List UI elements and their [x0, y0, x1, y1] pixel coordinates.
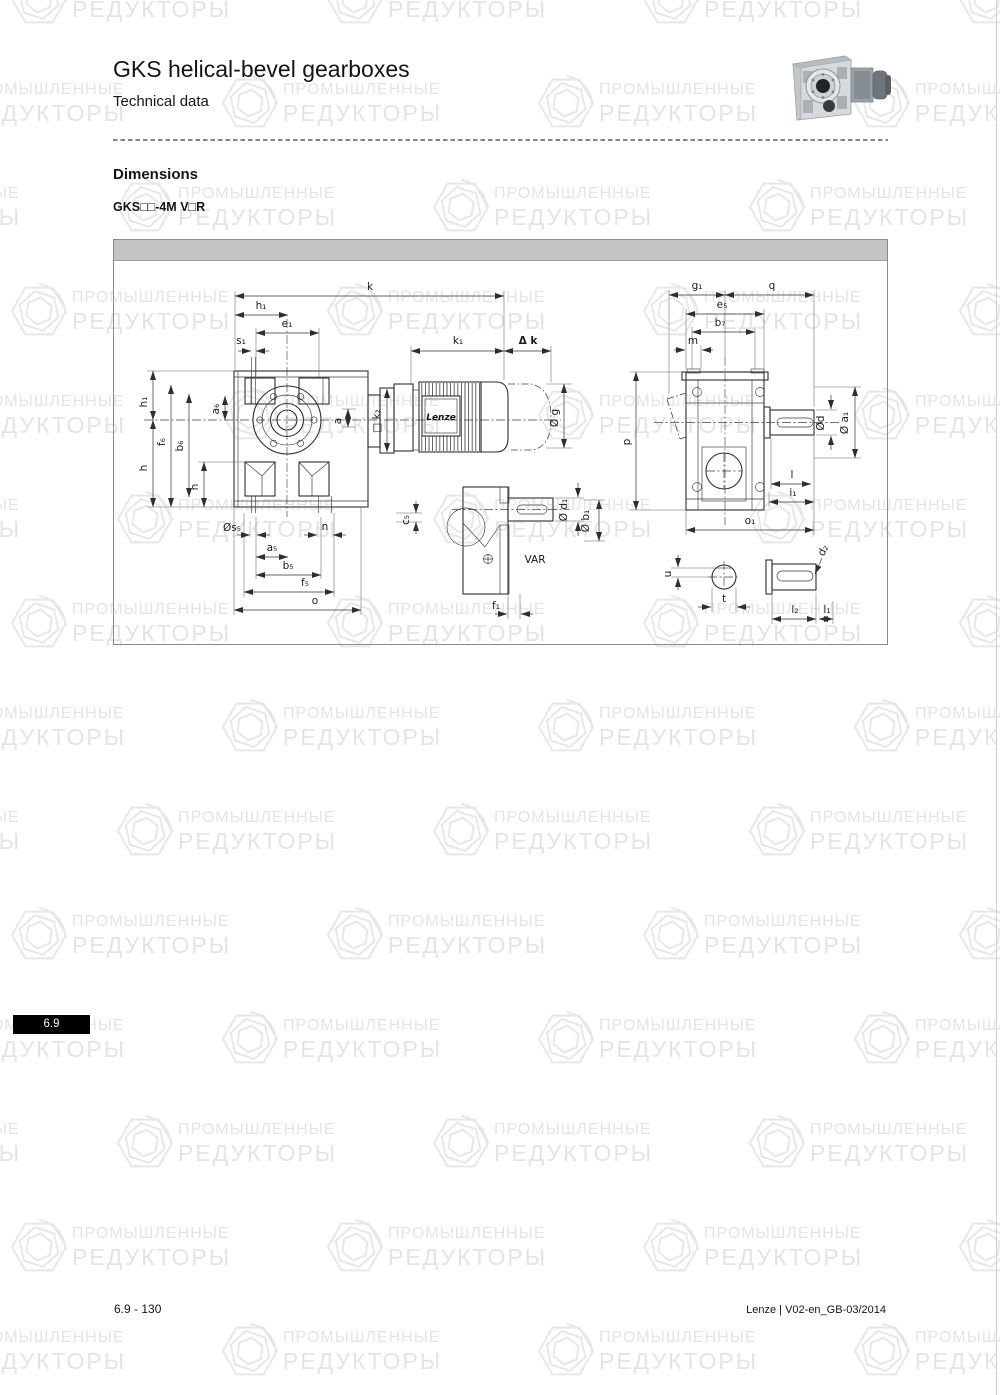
watermark-text-line1: ПРОМЫШЛЕННЫЕ — [599, 1328, 758, 1348]
svg-text:e₅: e₅ — [717, 299, 728, 311]
watermark-text-line2: РЕДУКТОРЫ — [0, 1036, 126, 1062]
watermark: ПРОМЫШЛЕННЫЕРЕДУКТОРЫ — [221, 1010, 442, 1068]
dimension-drawing-panel: Lenze k h₁ e₁ s₁ — [113, 239, 888, 645]
watermark: ПРОМЫШЛЕННЫЕРЕДУКТОРЫ — [537, 1322, 758, 1380]
watermark-text-line1: ПРОМЫШЛЕННЫЕ — [0, 1328, 126, 1348]
watermark-logo-icon — [221, 1010, 279, 1068]
watermark-text-line2: РЕДУКТОРЫ — [704, 932, 863, 958]
watermark: ПРОМЫШЛЕННЫЕРЕДУКТОРЫ — [853, 698, 1000, 756]
shaft-cross-section-detail: u t — [662, 555, 750, 612]
watermark-text-line2: РЕДУКТОРЫ — [0, 412, 126, 438]
watermark-logo-icon — [537, 1010, 595, 1068]
watermark-text-line2: РЕДУКТОРЫ — [494, 1140, 653, 1166]
svg-text:Ø b₁: Ø b₁ — [580, 510, 592, 532]
scan-edge-line — [996, 0, 997, 1395]
motor-brand-label: Lenze — [426, 413, 456, 423]
svg-text:g₁: g₁ — [692, 280, 703, 292]
svg-text:b₆: b₆ — [174, 441, 186, 452]
watermark-text-line2: РЕДУКТОРЫ — [388, 1244, 547, 1270]
watermark-text-line2: РЕДУКТОРЫ — [599, 1348, 758, 1374]
gearbox-product-image — [781, 44, 895, 124]
watermark-text-line1: ПРОМЫШЛЕННЫЕ — [283, 80, 442, 100]
watermark: ПРОМЫШЛЕННЫЕРЕДУКТОРЫ — [432, 1114, 653, 1172]
watermark-text-line2: РЕДУКТОРЫ — [72, 1244, 231, 1270]
watermark-text-line2: РЕДУКТОРЫ — [810, 204, 969, 230]
watermark-text-line2: РЕДУКТОРЫ — [72, 0, 231, 22]
svg-text:n: n — [322, 521, 329, 533]
watermark-logo-icon — [958, 282, 1000, 340]
watermark-text-line2: РЕДУКТОРЫ — [283, 1036, 442, 1062]
watermark: ПРОМЫШЛЕННЫЕРЕДУКТОРЫ — [748, 178, 969, 236]
watermark-text-line2: РЕДУКТОРЫ — [178, 828, 337, 854]
page-subtitle: Technical data — [113, 93, 209, 110]
drawing-header-bar — [114, 240, 887, 261]
svg-text:Ød: Ød — [815, 416, 827, 431]
svg-text:Δ k: Δ k — [519, 335, 539, 347]
watermark-text-line1: ПРОМЫШЛЕННЫЕ — [72, 912, 231, 932]
watermark-text-line1: ПРОМЫШЛЕННЫЕ — [178, 808, 337, 828]
watermark-logo-icon — [642, 906, 700, 964]
watermark-text-line1: ПРОМЫШЛЕННЫЕ — [704, 1224, 863, 1244]
watermark: ПРОМЫШЛЕННЫЕРЕДУКТОРЫ — [642, 1218, 863, 1276]
watermark: ПРОМЫШЛЕННЫЕРЕДУКТОРЫ — [958, 594, 1000, 652]
watermark: ПРОМЫШЛЕННЫЕРЕДУКТОРЫ — [642, 0, 863, 28]
watermark: ПРОМЫШЛЕННЫЕРЕДУКТОРЫ — [10, 0, 231, 28]
watermark: ПРОМЫШЛЕННЫЕРЕДУКТОРЫ — [0, 698, 126, 756]
svg-text:Ø a₁: Ø a₁ — [839, 412, 851, 434]
watermark-text-line1: ПРОМЫШЛЕННЫЕ — [0, 1120, 21, 1140]
section-heading: Dimensions — [113, 166, 198, 183]
watermark-text-line2: РЕДУКТОРЫ — [283, 724, 442, 750]
svg-text:t: t — [722, 593, 726, 605]
watermark: ПРОМЫШЛЕННЫЕРЕДУКТОРЫ — [432, 178, 653, 236]
watermark-text-line1: ПРОМЫШЛЕННЫЕ — [0, 392, 126, 412]
watermark: ПРОМЫШЛЕННЫЕРЕДУКТОРЫ — [0, 1322, 126, 1380]
watermark-text-line1: ПРОМЫШЛЕННЫЕ — [915, 704, 1000, 724]
watermark-text-line2: РЕДУКТОРЫ — [0, 724, 126, 750]
watermark-text-line2: РЕДУКТОРЫ — [915, 100, 1000, 126]
svg-text:Ø g: Ø g — [549, 409, 561, 427]
svg-text:b₇: b₇ — [715, 317, 726, 329]
watermark: ПРОМЫШЛЕННЫЕРЕДУКТОРЫ — [10, 906, 231, 964]
side-view: g₁ q e₅ b₇ m p — [621, 280, 861, 535]
var-shaft-section: Ø d₁ Ø b₁ f₁ VAR — [447, 483, 605, 619]
watermark-text-line1: ПРОМЫШЛЕННЫЕ — [0, 808, 21, 828]
watermark-text-line2: РЕДУКТОРЫ — [72, 932, 231, 958]
front-view-dimensions: k h₁ e₁ s₁ k₁ Δ k h₁ h f₆ — [138, 281, 572, 615]
watermark-text-line1: ПРОМЫШЛЕННЫЕ — [810, 1120, 969, 1140]
watermark-logo-icon — [116, 1114, 174, 1172]
watermark: ПРОМЫШЛЕННЫЕРЕДУКТОРЫ — [958, 906, 1000, 964]
watermark-text-line2: РЕДУКТОРЫ — [599, 724, 758, 750]
watermark-text-line2: РЕДУКТОРЫ — [704, 1244, 863, 1270]
watermark-logo-icon — [537, 74, 595, 132]
svg-text:l: l — [791, 469, 794, 481]
watermark-text-line2: РЕДУКТОРЫ — [283, 100, 442, 126]
watermark-logo-icon — [221, 698, 279, 756]
watermark-text-line1: ПРОМЫШЛЕННЫЕ — [599, 1016, 758, 1036]
watermark: ПРОМЫШЛЕННЫЕРЕДУКТОРЫ — [958, 282, 1000, 340]
watermark-text-line1: ПРОМЫШЛЕННЫЕ — [494, 808, 653, 828]
watermark-text-line1: ПРОМЫШЛЕННЫЕ — [0, 184, 21, 204]
watermark-logo-icon — [748, 178, 806, 236]
watermark: ПРОМЫШЛЕННЫЕРЕДУКТОРЫ — [642, 906, 863, 964]
watermark: ПРОМЫШЛЕННЫЕРЕДУКТОРЫ — [537, 74, 758, 132]
watermark-text-line2: РЕДУКТОРЫ — [704, 0, 863, 22]
watermark-text-line2: РЕДУКТОРЫ — [388, 0, 547, 22]
watermark: ПРОМЫШЛЕННЫЕРЕДУКТОРЫ — [0, 802, 21, 860]
watermark-text-line2: РЕДУКТОРЫ — [283, 1348, 442, 1374]
footer-document-id: Lenze | V02-en_GB-03/2014 — [746, 1304, 886, 1316]
watermark-logo-icon — [10, 1218, 68, 1276]
watermark: ПРОМЫШЛЕННЫЕРЕДУКТОРЫ — [0, 1114, 21, 1172]
watermark: ПРОМЫШЛЕННЫЕРЕДУКТОРЫ — [0, 74, 126, 132]
watermark: ПРОМЫШЛЕННЫЕРЕДУКТОРЫ — [326, 1218, 547, 1276]
watermark: ПРОМЫШЛЕННЫЕРЕДУКТОРЫ — [116, 802, 337, 860]
watermark-logo-icon — [221, 1322, 279, 1380]
svg-text:□ k₂: □ k₂ — [371, 409, 383, 433]
svg-text:o₁: o₁ — [745, 515, 756, 527]
watermark-text-line2: РЕДУКТОРЫ — [915, 412, 1000, 438]
svg-text:k: k — [367, 281, 374, 293]
svg-text:Øs₅: Øs₅ — [223, 522, 241, 534]
variant-label: VAR — [525, 554, 546, 566]
svg-text:d₂: d₂ — [816, 543, 832, 558]
watermark-logo-icon — [853, 698, 911, 756]
watermark-text-line1: ПРОМЫШЛЕННЫЕ — [283, 1328, 442, 1348]
watermark-text-line2: РЕДУКТОРЫ — [810, 1140, 969, 1166]
dashed-divider — [113, 138, 888, 142]
watermark-text-line2: РЕДУКТОРЫ — [915, 1348, 1000, 1374]
watermark: ПРОМЫШЛЕННЫЕРЕДУКТОРЫ — [326, 0, 547, 28]
watermark-logo-icon — [537, 1322, 595, 1380]
footer-page-number: 6.9 - 130 — [114, 1302, 161, 1316]
watermark-text-line1: ПРОМЫШЛЕННЫЕ — [494, 1120, 653, 1140]
watermark: ПРОМЫШЛЕННЫЕРЕДУКТОРЫ — [958, 1218, 1000, 1276]
watermark-text-line1: ПРОМЫШЛЕННЫЕ — [599, 704, 758, 724]
svg-text:Ø d₁: Ø d₁ — [558, 499, 570, 521]
svg-text:a: a — [332, 418, 344, 424]
watermark-logo-icon — [326, 1218, 384, 1276]
watermark-logo-icon — [116, 802, 174, 860]
watermark-logo-icon — [748, 1114, 806, 1172]
watermark-text-line1: ПРОМЫШЛЕННЫЕ — [388, 1224, 547, 1244]
watermark: ПРОМЫШЛЕННЫЕРЕДУКТОРЫ — [853, 1322, 1000, 1380]
watermark-text-line1: ПРОМЫШЛЕННЫЕ — [915, 1016, 1000, 1036]
watermark-logo-icon — [642, 1218, 700, 1276]
watermark-text-line2: РЕДУКТОРЫ — [388, 932, 547, 958]
svg-text:b₅: b₅ — [283, 560, 294, 572]
watermark-text-line1: ПРОМЫШЛЕННЫЕ — [915, 1328, 1000, 1348]
watermark-text-line2: РЕДУКТОРЫ — [494, 204, 653, 230]
watermark-text-line2: РЕДУКТОРЫ — [810, 828, 969, 854]
watermark: ПРОМЫШЛЕННЫЕРЕДУКТОРЫ — [537, 698, 758, 756]
watermark-text-line2: РЕДУКТОРЫ — [0, 204, 21, 230]
svg-text:o: o — [312, 595, 318, 607]
watermark-text-line2: РЕДУКТОРЫ — [0, 1348, 126, 1374]
watermark-logo-icon — [748, 802, 806, 860]
svg-text:c₅: c₅ — [400, 515, 412, 525]
watermark-logo-icon — [958, 0, 1000, 28]
watermark: ПРОМЫШЛЕННЫЕРЕДУКТОРЫ — [116, 1114, 337, 1172]
watermark-text-line1: ПРОМЫШЛЕННЫЕ — [599, 80, 758, 100]
svg-text:a₅: a₅ — [267, 542, 278, 554]
watermark-logo-icon — [958, 906, 1000, 964]
svg-text:i₁: i₁ — [789, 487, 796, 499]
watermark-text-line1: ПРОМЫШЛЕННЫЕ — [810, 184, 969, 204]
watermark-text-line2: РЕДУКТОРЫ — [915, 724, 1000, 750]
svg-text:s₁: s₁ — [236, 335, 246, 347]
watermark-logo-icon — [958, 594, 1000, 652]
watermark-text-line1: ПРОМЫШЛЕННЫЕ — [494, 184, 653, 204]
watermark: ПРОМЫШЛЕННЫЕРЕДУКТОРЫ — [748, 1114, 969, 1172]
watermark-text-line1: ПРОМЫШЛЕННЫЕ — [0, 704, 126, 724]
watermark-text-line2: РЕДУКТОРЫ — [494, 828, 653, 854]
watermark-text-line1: ПРОМЫШЛЕННЫЕ — [915, 80, 1000, 100]
watermark-text-line1: ПРОМЫШЛЕННЫЕ — [283, 1016, 442, 1036]
watermark: ПРОМЫШЛЕННЫЕРЕДУКТОРЫ — [853, 1010, 1000, 1068]
watermark: ПРОМЫШЛЕННЫЕРЕДУКТОРЫ — [221, 698, 442, 756]
svg-text:f₆: f₆ — [156, 438, 168, 446]
watermark-logo-icon — [432, 178, 490, 236]
svg-text:m: m — [688, 335, 698, 347]
watermark-text-line2: РЕДУКТОРЫ — [599, 100, 758, 126]
svg-text:q: q — [769, 280, 776, 292]
svg-text:a₆: a₆ — [210, 404, 222, 415]
svg-text:u: u — [662, 571, 674, 578]
watermark-text-line1: ПРОМЫШЛЕННЫЕ — [0, 80, 126, 100]
watermark-logo-icon — [958, 1218, 1000, 1276]
svg-text:h₁: h₁ — [256, 300, 267, 312]
svg-text:n: n — [189, 484, 201, 491]
watermark-logo-icon — [537, 698, 595, 756]
catalog-page: ПРОМЫШЛЕННЫЕРЕДУКТОРЫПРОМЫШЛЕННЫЕРЕДУКТО… — [0, 0, 1000, 1395]
watermark-text-line2: РЕДУКТОРЫ — [0, 100, 126, 126]
watermark-text-line1: ПРОМЫШЛЕННЫЕ — [72, 1224, 231, 1244]
svg-text:f₅: f₅ — [301, 577, 309, 589]
watermark: ПРОМЫШЛЕННЫЕРЕДУКТОРЫ — [537, 1010, 758, 1068]
watermark-logo-icon — [326, 906, 384, 964]
watermark: ПРОМЫШЛЕННЫЕРЕДУКТОРЫ — [432, 802, 653, 860]
watermark: ПРОМЫШЛЕННЫЕРЕДУКТОРЫ — [0, 386, 126, 444]
watermark-logo-icon — [10, 282, 68, 340]
watermark-text-line2: РЕДУКТОРЫ — [0, 1140, 21, 1166]
watermark-logo-icon — [10, 594, 68, 652]
watermark-text-line1: ПРОМЫШЛЕННЫЕ — [178, 1120, 337, 1140]
watermark-logo-icon — [853, 1322, 911, 1380]
watermark-logo-icon — [432, 802, 490, 860]
watermark-text-line2: РЕДУКТОРЫ — [599, 1036, 758, 1062]
watermark-text-line1: ПРОМЫШЛЕННЫЕ — [283, 704, 442, 724]
watermark-text-line2: РЕДУКТОРЫ — [915, 1036, 1000, 1062]
watermark-logo-icon — [326, 0, 384, 28]
watermark-text-line2: РЕДУКТОРЫ — [0, 828, 21, 854]
watermark-text-line1: ПРОМЫШЛЕННЫЕ — [704, 912, 863, 932]
watermark-logo-icon — [10, 0, 68, 28]
watermark-text-line1: ПРОМЫШЛЕННЫЕ — [810, 808, 969, 828]
svg-text:l₂: l₂ — [791, 604, 798, 616]
key-detail: d₂ l₂ l₁ — [766, 543, 833, 624]
svg-text:h₁: h₁ — [138, 397, 150, 408]
watermark-text-line1: ПРОМЫШЛЕННЫЕ — [915, 392, 1000, 412]
watermark: ПРОМЫШЛЕННЫЕРЕДУКТОРЫ — [0, 178, 21, 236]
technical-drawing: Lenze k h₁ e₁ s₁ — [114, 261, 887, 645]
svg-text:f₁: f₁ — [492, 600, 500, 612]
watermark-text-line1: ПРОМЫШЛЕННЫЕ — [388, 912, 547, 932]
watermark: ПРОМЫШЛЕННЫЕРЕДУКТОРЫ — [748, 802, 969, 860]
svg-text:k₁: k₁ — [453, 335, 463, 347]
watermark-text-line1: ПРОМЫШЛЕННЫЕ — [0, 496, 21, 516]
svg-text:l₁: l₁ — [823, 604, 830, 616]
model-designation: GKS□□-4M V□R — [113, 200, 205, 214]
watermark-logo-icon — [432, 1114, 490, 1172]
watermark: ПРОМЫШЛЕННЫЕРЕДУКТОРЫ — [10, 1218, 231, 1276]
svg-text:h: h — [138, 465, 150, 472]
svg-text:e₁: e₁ — [282, 318, 293, 330]
watermark: ПРОМЫШЛЕННЫЕРЕДУКТОРЫ — [0, 490, 21, 548]
watermark-logo-icon — [642, 0, 700, 28]
watermark-logo-icon — [853, 1010, 911, 1068]
watermark: ПРОМЫШЛЕННЫЕРЕДУКТОРЫ — [221, 1322, 442, 1380]
watermark-logo-icon — [10, 906, 68, 964]
chapter-tab: 6.9 — [13, 1015, 90, 1034]
watermark-text-line2: РЕДУКТОРЫ — [178, 1140, 337, 1166]
watermark-text-line2: РЕДУКТОРЫ — [0, 516, 21, 542]
page-title: GKS helical-bevel gearboxes — [113, 56, 410, 83]
motor: Lenze — [419, 382, 551, 452]
watermark: ПРОМЫШЛЕННЫЕРЕДУКТОРЫ — [326, 906, 547, 964]
watermark: ПРОМЫШЛЕННЫЕРЕДУКТОРЫ — [958, 0, 1000, 28]
svg-text:p: p — [621, 438, 633, 445]
